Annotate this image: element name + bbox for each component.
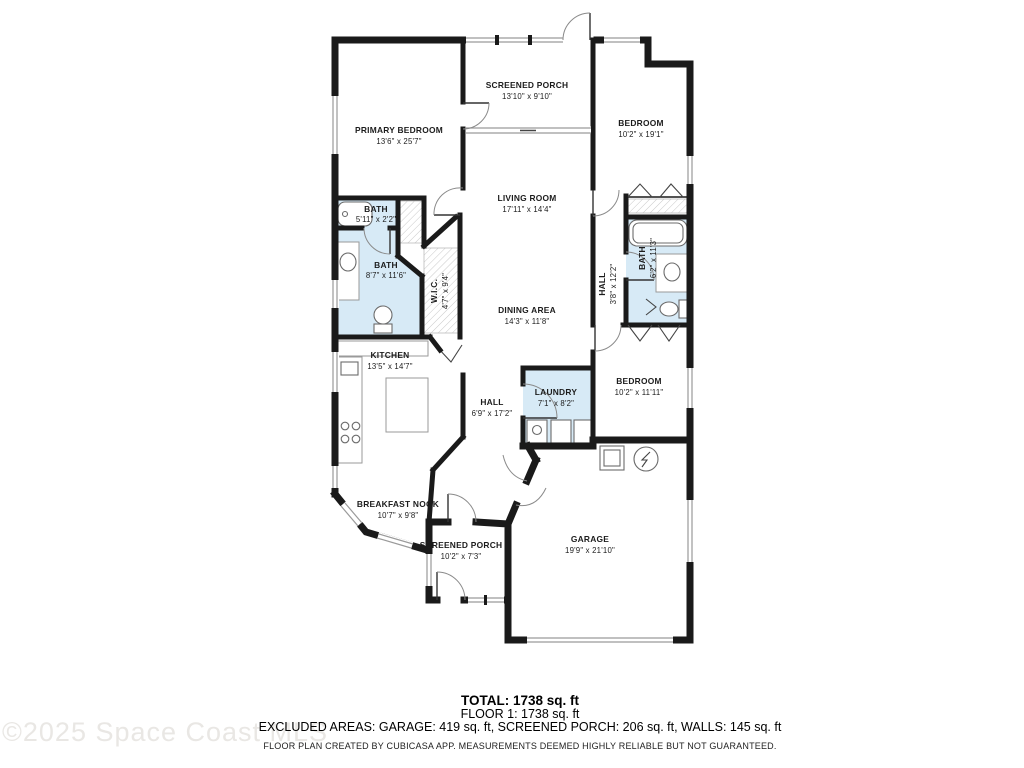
room-dims: 14'3" x 11'8" bbox=[505, 317, 550, 326]
window bbox=[425, 554, 433, 586]
toilet-bowl bbox=[374, 306, 392, 324]
door-porch-exterior bbox=[563, 13, 590, 40]
room-dims: 6'2" x 11'3" bbox=[649, 238, 658, 278]
room-dims: 4'7" x 9'4" bbox=[441, 273, 450, 309]
door-living-to-hall bbox=[593, 190, 619, 216]
room-name: SCREENED PORCH bbox=[420, 540, 503, 550]
bifold-doors-bedroom1 bbox=[628, 184, 683, 197]
disclaimer: FLOOR PLAN CREATED BY CUBICASA APP. MEAS… bbox=[16, 741, 1024, 751]
door-front-entry bbox=[448, 494, 476, 522]
room-name: KITCHEN bbox=[371, 350, 410, 360]
washer-icon bbox=[551, 420, 571, 443]
floor-plan-svg: SCREENED PORCH 13'10" x 9'10" PRIMARY BE… bbox=[0, 0, 1024, 768]
door-garage-entry bbox=[503, 455, 546, 506]
room-name: BATH bbox=[364, 204, 388, 214]
room-dims: 10'2" x 19'1" bbox=[618, 130, 663, 139]
window bbox=[604, 36, 640, 44]
room-label-kitchen: KITCHEN 13'5" x 14'7" bbox=[367, 350, 412, 371]
room-dims: 7'1" x 8'2" bbox=[538, 399, 574, 408]
room-dims: 8'7" x 11'6" bbox=[366, 271, 406, 280]
room-name: W.I.C. bbox=[429, 279, 439, 303]
toilet-tank bbox=[374, 324, 392, 333]
room-label-hall-center: HALL 6'9" x 17'2" bbox=[472, 397, 513, 418]
plan-summary: TOTAL: 1738 sq. ft FLOOR 1: 1738 sq. ft … bbox=[16, 694, 1024, 751]
room-dims: 10'7" x 9'8" bbox=[378, 511, 419, 520]
hall-closet bbox=[400, 201, 422, 243]
room-label-hall-right: HALL 3'8" x 12'2" bbox=[597, 264, 618, 305]
room-dims: 6'9" x 17'2" bbox=[472, 409, 513, 418]
room-label-living-room: LIVING ROOM 17'11" x 14'4" bbox=[497, 193, 556, 214]
window bbox=[686, 368, 694, 408]
toilet-bowl bbox=[660, 302, 678, 316]
door-bedroom2 bbox=[595, 325, 621, 351]
door-primary-to-porch bbox=[463, 103, 489, 129]
room-label-breakfast-nook: BREAKFAST NOOK 10'7" x 9'8" bbox=[357, 499, 439, 520]
room-label-garage: GARAGE 19'9" x 21'10" bbox=[565, 534, 615, 555]
sliding-door-porch bbox=[466, 127, 591, 134]
window bbox=[331, 96, 339, 154]
room-dims: 17'11" x 14'4" bbox=[502, 205, 551, 214]
room-label-dining-area: DINING AREA 14'3" x 11'8" bbox=[498, 305, 556, 326]
room-name: GARAGE bbox=[571, 534, 609, 544]
room-label-bedroom-top-right: BEDROOM 10'2" x 19'1" bbox=[618, 118, 664, 139]
room-dims: 13'6" x 25'7" bbox=[376, 137, 421, 146]
room-name: LIVING ROOM bbox=[497, 193, 556, 203]
vanity-counter bbox=[656, 254, 688, 292]
dryer-icon bbox=[574, 420, 591, 443]
door-porch2-exterior bbox=[437, 572, 465, 600]
utility-sink bbox=[527, 420, 547, 443]
window bbox=[331, 280, 339, 308]
room-label-screened-porch-top: SCREENED PORCH 13'10" x 9'10" bbox=[486, 80, 569, 101]
room-name: BEDROOM bbox=[618, 118, 664, 128]
room-dims: 3'8" x 12'2" bbox=[609, 264, 618, 305]
room-dims: 13'5" x 14'7" bbox=[367, 362, 412, 371]
room-dims: 10'2" x 11'11" bbox=[615, 388, 664, 397]
room-label-primary-bedroom: PRIMARY BEDROOM 13'6" x 25'7" bbox=[355, 125, 443, 146]
water-heater-icon bbox=[634, 447, 658, 471]
pantry-chevron bbox=[438, 345, 462, 362]
room-dims: 5'11" x 2'2" bbox=[356, 215, 396, 224]
room-dims: 19'9" x 21'10" bbox=[565, 546, 615, 555]
window bbox=[686, 156, 694, 184]
room-name: BATH bbox=[637, 246, 647, 270]
window bbox=[331, 352, 339, 392]
room-name: LAUNDRY bbox=[535, 387, 578, 397]
kitchen-island bbox=[386, 378, 428, 432]
room-name: PRIMARY BEDROOM bbox=[355, 125, 443, 135]
room-name: BATH bbox=[374, 260, 398, 270]
floor-plan-page: { "watermark": "©2025 Space Coast MLS", … bbox=[0, 0, 1024, 768]
door-primary-to-living bbox=[434, 188, 463, 215]
bedroom1-closet bbox=[628, 199, 687, 213]
bathtub-icon bbox=[629, 220, 687, 246]
room-name: DINING AREA bbox=[498, 305, 556, 315]
window-garage-side bbox=[686, 500, 694, 562]
room-dims: 13'10" x 9'10" bbox=[502, 92, 552, 101]
screen-wall-bottom bbox=[468, 595, 504, 605]
room-name: SCREENED PORCH bbox=[486, 80, 569, 90]
room-name: BREAKFAST NOOK bbox=[357, 499, 439, 509]
screen-wall-top bbox=[466, 35, 563, 45]
room-name: HALL bbox=[480, 397, 503, 407]
room-name: HALL bbox=[597, 272, 607, 295]
bay-window bbox=[377, 534, 413, 548]
total-area: TOTAL: 1738 sq. ft bbox=[16, 694, 1024, 708]
excluded-areas: EXCLUDED AREAS: GARAGE: 419 sq. ft, SCRE… bbox=[16, 721, 1024, 734]
window bbox=[331, 466, 339, 488]
room-label-bedroom-right: BEDROOM 10'2" x 11'11" bbox=[615, 376, 664, 397]
garage-door bbox=[527, 636, 673, 644]
room-dims: 10'2" x 7'3" bbox=[441, 552, 482, 561]
room-name: BEDROOM bbox=[616, 376, 662, 386]
